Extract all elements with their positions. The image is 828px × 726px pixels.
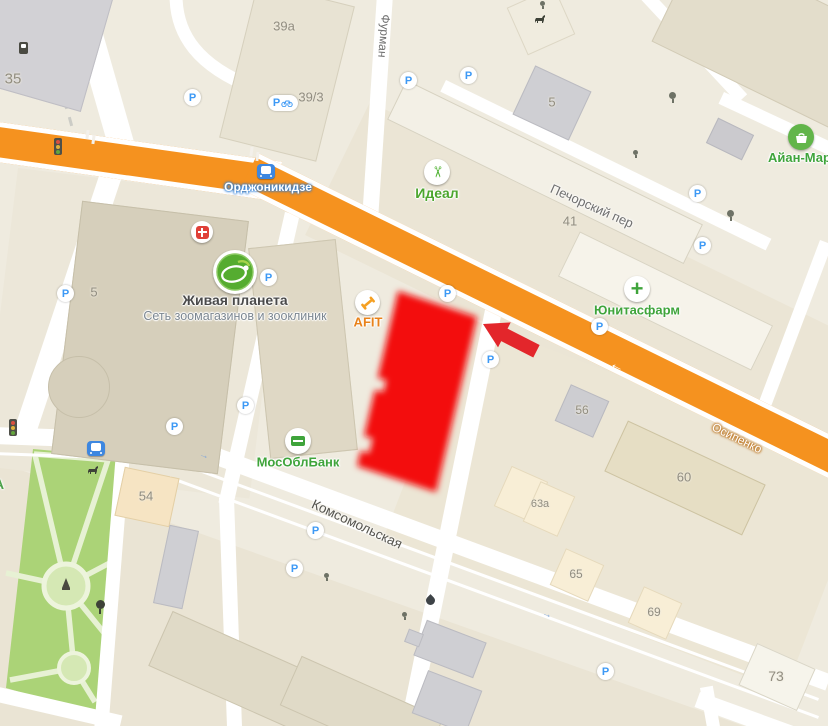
- tree-icon-park: [94, 600, 106, 614]
- bus-stop-icon-park[interactable]: [87, 441, 105, 456]
- ayan-market-poi-icon[interactable]: [788, 124, 814, 150]
- basket-icon: [794, 131, 809, 144]
- tree-icon: [538, 1, 547, 9]
- parking-icon[interactable]: P: [689, 185, 706, 202]
- building-zhivaya-tower: [48, 356, 110, 418]
- parking-icon[interactable]: P: [166, 418, 183, 435]
- scissors-icon: ✂: [428, 166, 446, 179]
- traffic-light-icon: [54, 138, 62, 155]
- unitasfarm-poi-icon[interactable]: +: [624, 276, 650, 302]
- number-39a: 39а: [273, 19, 295, 34]
- bank-card-icon: [291, 436, 305, 446]
- tree-icon: [631, 150, 640, 158]
- bicycle-glyph: [281, 99, 293, 107]
- bus-stop-icon-ordzhonikidze[interactable]: [257, 164, 275, 179]
- traffic-light-icon: [9, 419, 17, 436]
- parking-icon[interactable]: P: [460, 67, 477, 84]
- number-65: 65: [569, 567, 582, 581]
- tree-icon: [400, 612, 409, 620]
- bicycle-parking-icon[interactable]: P: [268, 95, 298, 111]
- parking-icon[interactable]: P: [260, 269, 277, 286]
- number-35: 35: [5, 71, 22, 88]
- mosoblbank-poi-icon[interactable]: [285, 428, 311, 454]
- parking-icon[interactable]: P: [286, 560, 303, 577]
- turtle-logo-icon: [216, 253, 254, 291]
- parking-icon[interactable]: P: [482, 351, 499, 368]
- number-39-3: 39/3: [298, 90, 323, 105]
- number-56: 56: [575, 403, 588, 417]
- dog-park-icon: [533, 13, 547, 24]
- tree-icon: [322, 573, 331, 581]
- red-cross-icon: [196, 226, 209, 239]
- number-60: 60: [677, 470, 691, 485]
- number-5-top: 5: [548, 95, 555, 110]
- medical-poi-icon[interactable]: [191, 221, 213, 243]
- map-canvas[interactable]: ← 35 39а 39/3 5 5 41 54 56 60 63а 65 69 …: [0, 0, 828, 726]
- parking-icon[interactable]: P: [57, 285, 74, 302]
- zhivaya-planeta-subtitle: Сеть зоомагазинов и зооклиник: [143, 309, 326, 323]
- zhivaya-planeta-logo[interactable]: [213, 250, 257, 294]
- tree-icon: [726, 210, 735, 221]
- parking-icon[interactable]: P: [237, 397, 254, 414]
- parking-icon[interactable]: P: [400, 72, 417, 89]
- afit-poi-icon[interactable]: [355, 290, 380, 315]
- partial-poi-label-left-edge: А: [0, 476, 4, 492]
- monument-icon: [62, 578, 70, 590]
- parking-icon[interactable]: P: [307, 522, 324, 539]
- parking-icon[interactable]: P: [694, 237, 711, 254]
- zhivaya-planeta-title[interactable]: Живая планета: [182, 292, 287, 308]
- ideal-poi-icon[interactable]: ✂: [424, 159, 450, 185]
- number-73: 73: [768, 668, 784, 684]
- parking-icon[interactable]: P: [184, 89, 201, 106]
- dog-icon-park: [86, 464, 100, 475]
- building-zhivaya-planeta: [51, 201, 249, 475]
- pharmacy-cross-icon: +: [631, 279, 644, 299]
- parking-icon[interactable]: P: [591, 318, 608, 335]
- ideal-label[interactable]: Идеал: [415, 185, 458, 201]
- afit-label[interactable]: AFIT: [354, 315, 383, 330]
- number-69: 69: [647, 605, 660, 619]
- mosoblbank-label[interactable]: МосОблБанк: [257, 455, 340, 470]
- ayan-market-label[interactable]: Айан-Марке: [768, 150, 828, 165]
- parking-icon[interactable]: P: [439, 285, 456, 302]
- parking-icon[interactable]: P: [597, 663, 614, 680]
- number-63a: 63а: [531, 498, 549, 510]
- number-41: 41: [563, 214, 577, 229]
- tree-icon: [668, 92, 677, 103]
- bus-stop-label-ordzhonikidze[interactable]: Орджоникидзе: [224, 180, 312, 194]
- bicycle-parking-letter: P: [273, 97, 280, 109]
- number-5-left: 5: [90, 285, 97, 300]
- unitasfarm-label[interactable]: Юнитасфарм: [594, 303, 680, 318]
- ev-charger-icon: [19, 42, 28, 54]
- dumbbell-icon: [360, 295, 376, 311]
- number-54: 54: [139, 489, 153, 504]
